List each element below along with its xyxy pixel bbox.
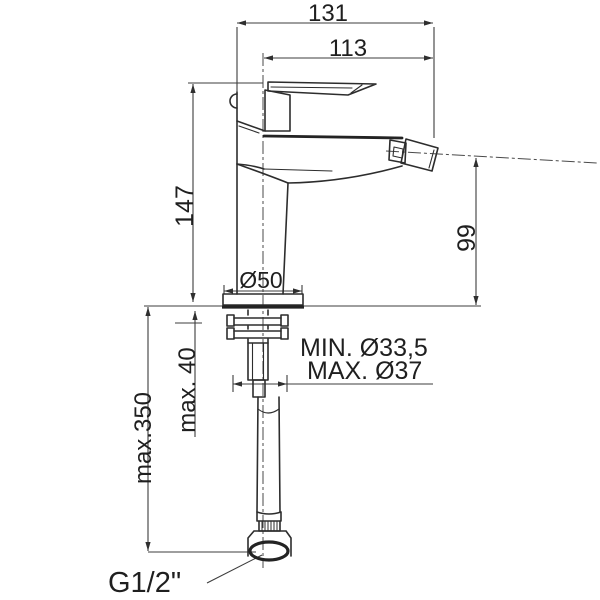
dimension-labels: 131 113 147 99 Ø50 MIN. Ø33,5 MAX. Ø37 m… [108,0,481,599]
thread-size-label: G1/2" [108,567,181,599]
dim-body-height-label: 147 [171,185,199,227]
aerator-axis-centerline [386,151,597,163]
thread-leader-line [207,555,262,583]
dim-hole-max-label: MAX. Ø37 [307,357,422,385]
dim-spout-height-label: 99 [453,224,481,252]
dim-spout-reach-label: 113 [329,35,367,62]
spout-aerator [389,139,438,171]
drawing-canvas: 131 113 147 99 Ø50 MIN. Ø33,5 MAX. Ø37 m… [0,0,600,600]
nut-opening [250,542,288,560]
connector-nut [248,512,291,560]
flexible-hose [257,397,280,512]
centerlines [263,53,597,568]
dim-hose-reach-label: max.350 [130,392,157,484]
dim-deck-thickness-label: max. 40 [174,347,201,432]
dim-total-width-label: 131 [308,0,348,27]
faucet-outline [222,82,438,560]
dimension-lines [144,20,481,583]
dim-base-diameter-label: Ø50 [239,267,282,293]
handle-lever [230,82,376,131]
faucet-body [237,92,402,294]
technical-drawing: 131 113 147 99 Ø50 MIN. Ø33,5 MAX. Ø37 m… [0,0,600,600]
